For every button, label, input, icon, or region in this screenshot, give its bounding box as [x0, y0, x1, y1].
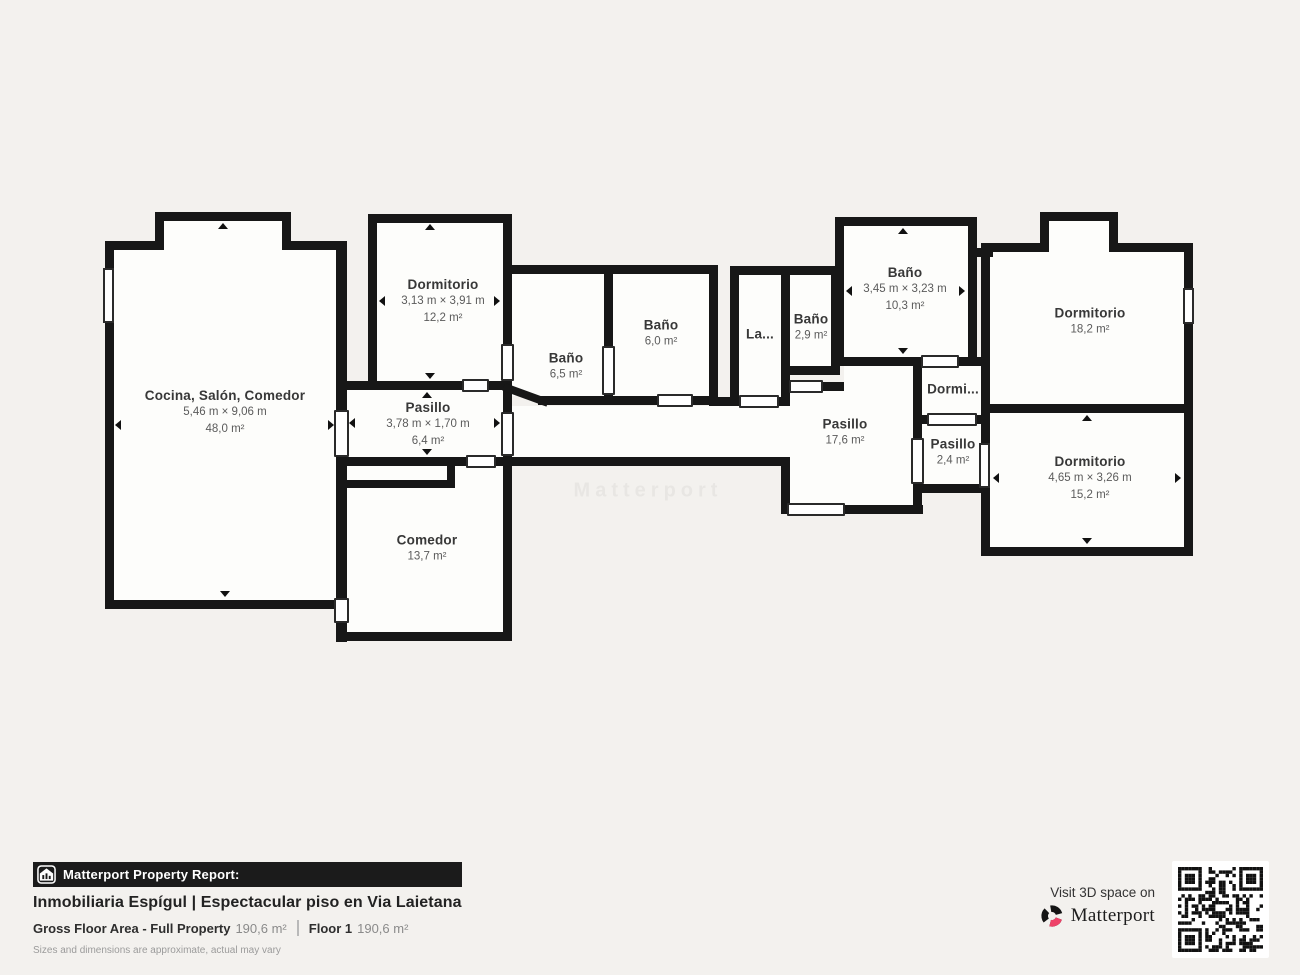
- matterport-wordmark: Matterport: [1071, 905, 1155, 927]
- visit-3d-label: Visit 3D space on: [905, 885, 1155, 900]
- dimension-arrow: [494, 296, 500, 306]
- window: [1183, 288, 1194, 324]
- divider: [297, 920, 299, 936]
- area-summary: Gross Floor Area - Full Property 190,6 m…: [33, 920, 408, 936]
- gross-floor-area-value: 190,6 m²: [235, 921, 286, 936]
- door-opening: [927, 413, 977, 426]
- window: [103, 268, 114, 323]
- dimension-arrow: [425, 373, 435, 379]
- dimension-arrow: [993, 473, 999, 483]
- dimension-arrow: [328, 420, 334, 430]
- floor-label: Floor 1: [309, 921, 352, 936]
- door-opening: [466, 455, 496, 468]
- door-opening: [789, 380, 823, 393]
- property-title: Inmobiliaria Espígul | Espectacular piso…: [33, 894, 462, 912]
- report-bar-label: Matterport Property Report:: [63, 867, 240, 882]
- room-label-bano-10-3: Baño 3,45 m × 3,23 m 10,3 m²: [863, 264, 946, 314]
- dimension-arrow: [898, 228, 908, 234]
- disclaimer: Sizes and dimensions are approximate, ac…: [33, 945, 281, 956]
- door-opening: [787, 503, 845, 516]
- dimension-arrow: [379, 296, 385, 306]
- door-opening: [334, 410, 349, 457]
- room-label-bano-6-5: Baño 6,5 m²: [549, 349, 584, 383]
- door-opening: [501, 412, 514, 456]
- house-icon: [37, 865, 56, 884]
- dimension-arrow: [422, 449, 432, 455]
- dimension-arrow: [1082, 415, 1092, 421]
- room-label-dormitorio-12: Dormitorio 3,13 m × 3,91 m 12,2 m²: [401, 276, 484, 326]
- door-opening: [739, 395, 779, 408]
- matterport-brand: Matterport: [905, 904, 1155, 928]
- dimension-arrow: [1082, 538, 1092, 544]
- room-label-dormi: Dormi...: [927, 381, 979, 398]
- room-label-dormitorio-15: Dormitorio 4,65 m × 3,26 m 15,2 m²: [1048, 453, 1131, 503]
- dimension-arrow: [422, 392, 432, 398]
- room-label-bano-6-0: Baño 6,0 m²: [644, 316, 679, 350]
- qr-code: [1172, 861, 1269, 958]
- watermark: Matterport: [574, 480, 723, 503]
- report-header-bar: Matterport Property Report:: [33, 862, 462, 887]
- door-opening: [462, 379, 489, 392]
- door-opening: [911, 438, 924, 484]
- dimension-arrow: [898, 348, 908, 354]
- door-opening: [501, 344, 514, 381]
- dimension-arrow: [425, 224, 435, 230]
- matterport-logo-icon: [1040, 904, 1064, 928]
- door-opening: [334, 598, 349, 623]
- dimension-arrow: [1175, 473, 1181, 483]
- dimension-arrow: [115, 420, 121, 430]
- floor-value: 190,6 m²: [357, 921, 408, 936]
- dimension-arrow: [494, 418, 500, 428]
- room-label-pasillo-17: Pasillo 17,6 m²: [823, 415, 868, 449]
- door-opening: [657, 394, 693, 407]
- gross-floor-area-label: Gross Floor Area - Full Property: [33, 921, 230, 936]
- room-label-dormitorio-18: Dormitorio 18,2 m²: [1055, 304, 1126, 338]
- dimension-arrow: [349, 418, 355, 428]
- window: [979, 443, 990, 488]
- room-label-pasillo-2-4: Pasillo 2,4 m²: [931, 435, 976, 469]
- property-report-page: Matterport Cocina, Salón, Comedor 5,46 m…: [0, 0, 1300, 975]
- dimension-arrow: [220, 591, 230, 597]
- room-label-bano-2-9: Baño 2,9 m²: [794, 310, 829, 344]
- room-label-lavadero: La...: [746, 326, 774, 343]
- room-label-cocina: Cocina, Salón, Comedor 5,46 m × 9,06 m 4…: [145, 387, 305, 437]
- room-label-pasillo-6: Pasillo 3,78 m × 1,70 m 6,4 m²: [386, 399, 469, 449]
- room-label-comedor: Comedor 13,7 m²: [397, 531, 458, 565]
- door-opening: [921, 355, 959, 368]
- dimension-arrow: [959, 286, 965, 296]
- dimension-arrow: [846, 286, 852, 296]
- door-opening: [602, 346, 615, 395]
- dimension-arrow: [218, 223, 228, 229]
